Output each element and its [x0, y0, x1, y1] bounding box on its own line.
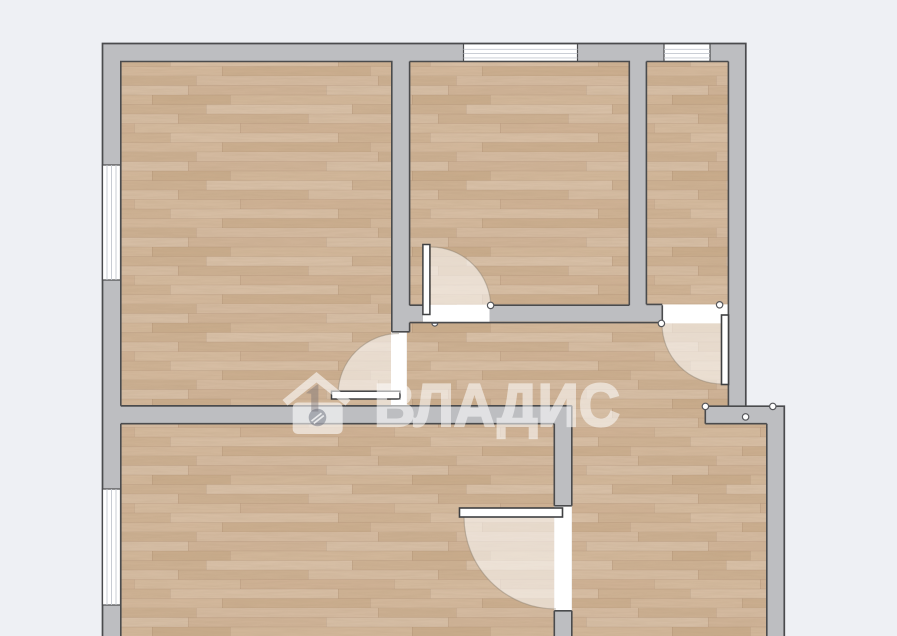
- svg-text:ВЛАДИС: ВЛАДИС: [374, 372, 620, 439]
